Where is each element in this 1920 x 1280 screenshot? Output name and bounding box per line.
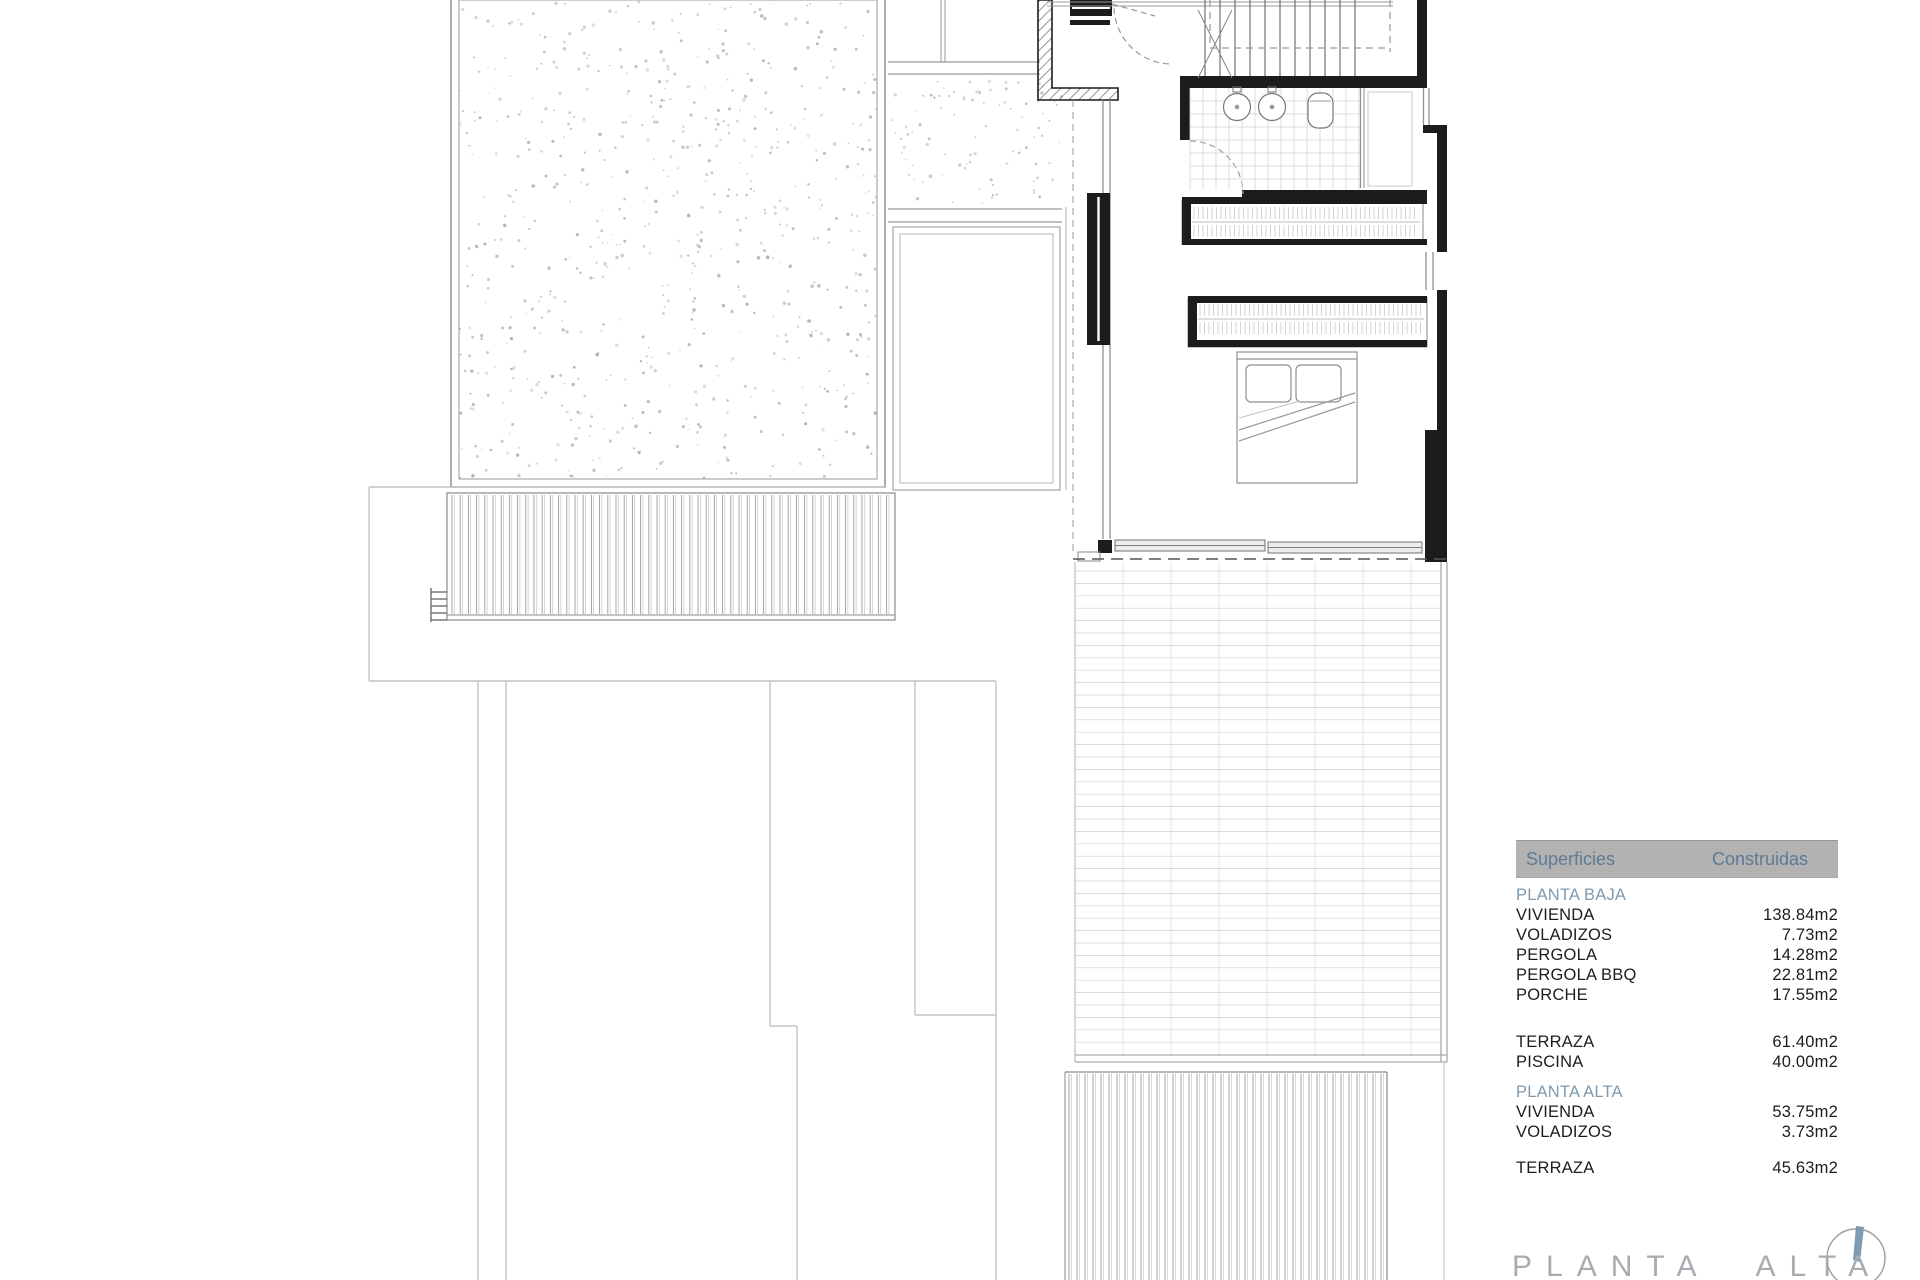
bedroom-window-shutter: [1087, 193, 1110, 345]
table-row: TERRAZA45.63m2: [1516, 1159, 1838, 1179]
surfaces-table-rows: PLANTA BAJA VIVIENDA138.84m2 VOLADIZOS7.…: [1516, 886, 1838, 1179]
table-row: VOLADIZOS3.73m2: [1516, 1123, 1838, 1143]
wardrobe: [1182, 197, 1427, 245]
surfaces-table-header: Superficies Construidas: [1516, 840, 1838, 878]
stairwell-dashed-outline: [1210, 0, 1390, 52]
sink-icon: [1224, 87, 1251, 121]
table-row: PERGOLA14.28m2: [1516, 946, 1838, 966]
table-row: VIVIENDA53.75m2: [1516, 1103, 1838, 1123]
toilet-icon: [1308, 93, 1333, 128]
floorplan-sheet: Superficies Construidas PLANTA BAJA VIVI…: [0, 0, 1920, 1280]
pergola-louvers-left: [431, 493, 895, 622]
table-row: PISCINA40.00m2: [1516, 1053, 1838, 1073]
table-row: PERGOLA BBQ22.81m2: [1516, 966, 1838, 986]
plan-title: PLANTA ALTA: [1512, 1251, 1882, 1280]
surfaces-col-superficies: Superficies: [1526, 849, 1615, 870]
pergola-louvers-bottom: [1065, 1072, 1387, 1280]
table-row: TERRAZA61.40m2: [1516, 1033, 1838, 1053]
table-row: VOLADIZOS7.73m2: [1516, 926, 1838, 946]
sink-icon: [1259, 87, 1286, 121]
table-row: VIVIENDA138.84m2: [1516, 906, 1838, 926]
table-row: PORCHE17.55m2: [1516, 986, 1838, 1006]
sliding-glass-doors: [1078, 540, 1422, 561]
bed-icon: [1237, 352, 1357, 483]
table-section-planta-baja: PLANTA BAJA: [1516, 886, 1838, 906]
table-section-planta-alta: PLANTA ALTA: [1516, 1083, 1838, 1103]
surfaces-col-construidas: Construidas: [1712, 849, 1808, 870]
door-swings: [1112, 4, 1243, 194]
roof-gravel-area: [451, 0, 885, 487]
bathroom: [1190, 87, 1412, 190]
shower-tray: [1368, 92, 1412, 186]
ladder-detail: [431, 588, 447, 622]
surfaces-table: Superficies Construidas PLANTA BAJA VIVI…: [1516, 840, 1838, 1179]
wardrobe: [1188, 296, 1427, 347]
